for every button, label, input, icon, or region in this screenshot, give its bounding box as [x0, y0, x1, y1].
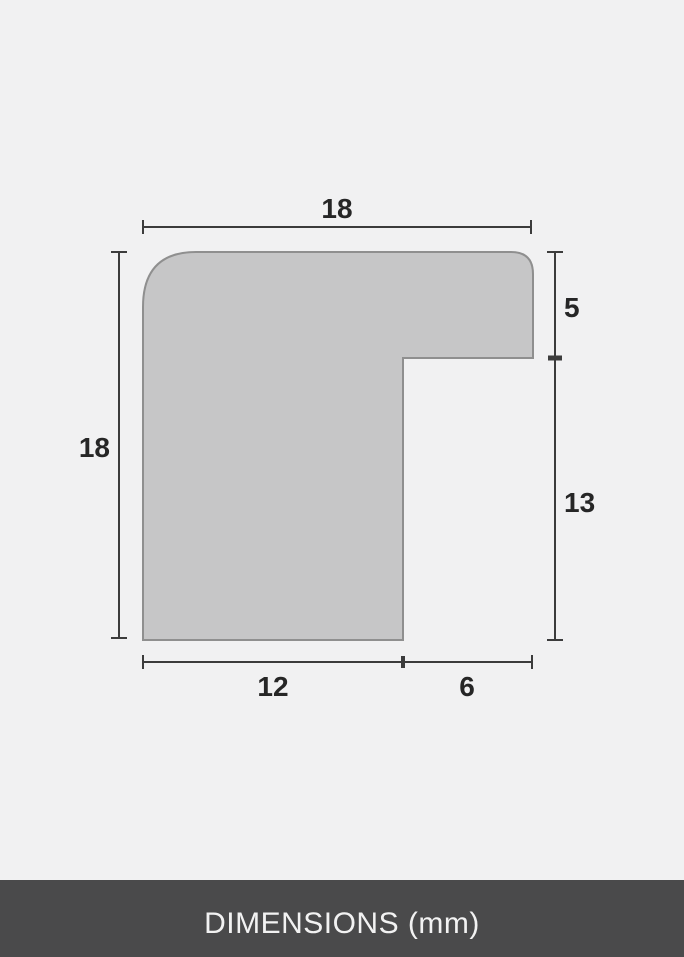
dim-right-upper-label: 5	[564, 292, 580, 323]
dim-right-heights	[547, 252, 563, 640]
dim-bottom-inner-label: 12	[257, 671, 288, 702]
dim-left-height	[111, 252, 127, 638]
footer-unit-label: DIMENSIONS (mm)	[204, 907, 480, 941]
profile-shape	[143, 252, 533, 640]
dimension-drawing-page: 18 18 5 13 12 6 DIMENSIONS (mm)	[0, 0, 684, 957]
profile-diagram: 18 18 5 13 12 6	[0, 0, 684, 880]
dim-right-lower-label: 13	[564, 487, 595, 518]
footer-unit-bar: DIMENSIONS (mm)	[0, 880, 684, 957]
dim-bottom-outer-label: 6	[459, 671, 475, 702]
dim-top-label: 18	[321, 193, 352, 224]
dim-bottom-widths	[143, 655, 532, 669]
dim-left-label: 18	[79, 432, 110, 463]
